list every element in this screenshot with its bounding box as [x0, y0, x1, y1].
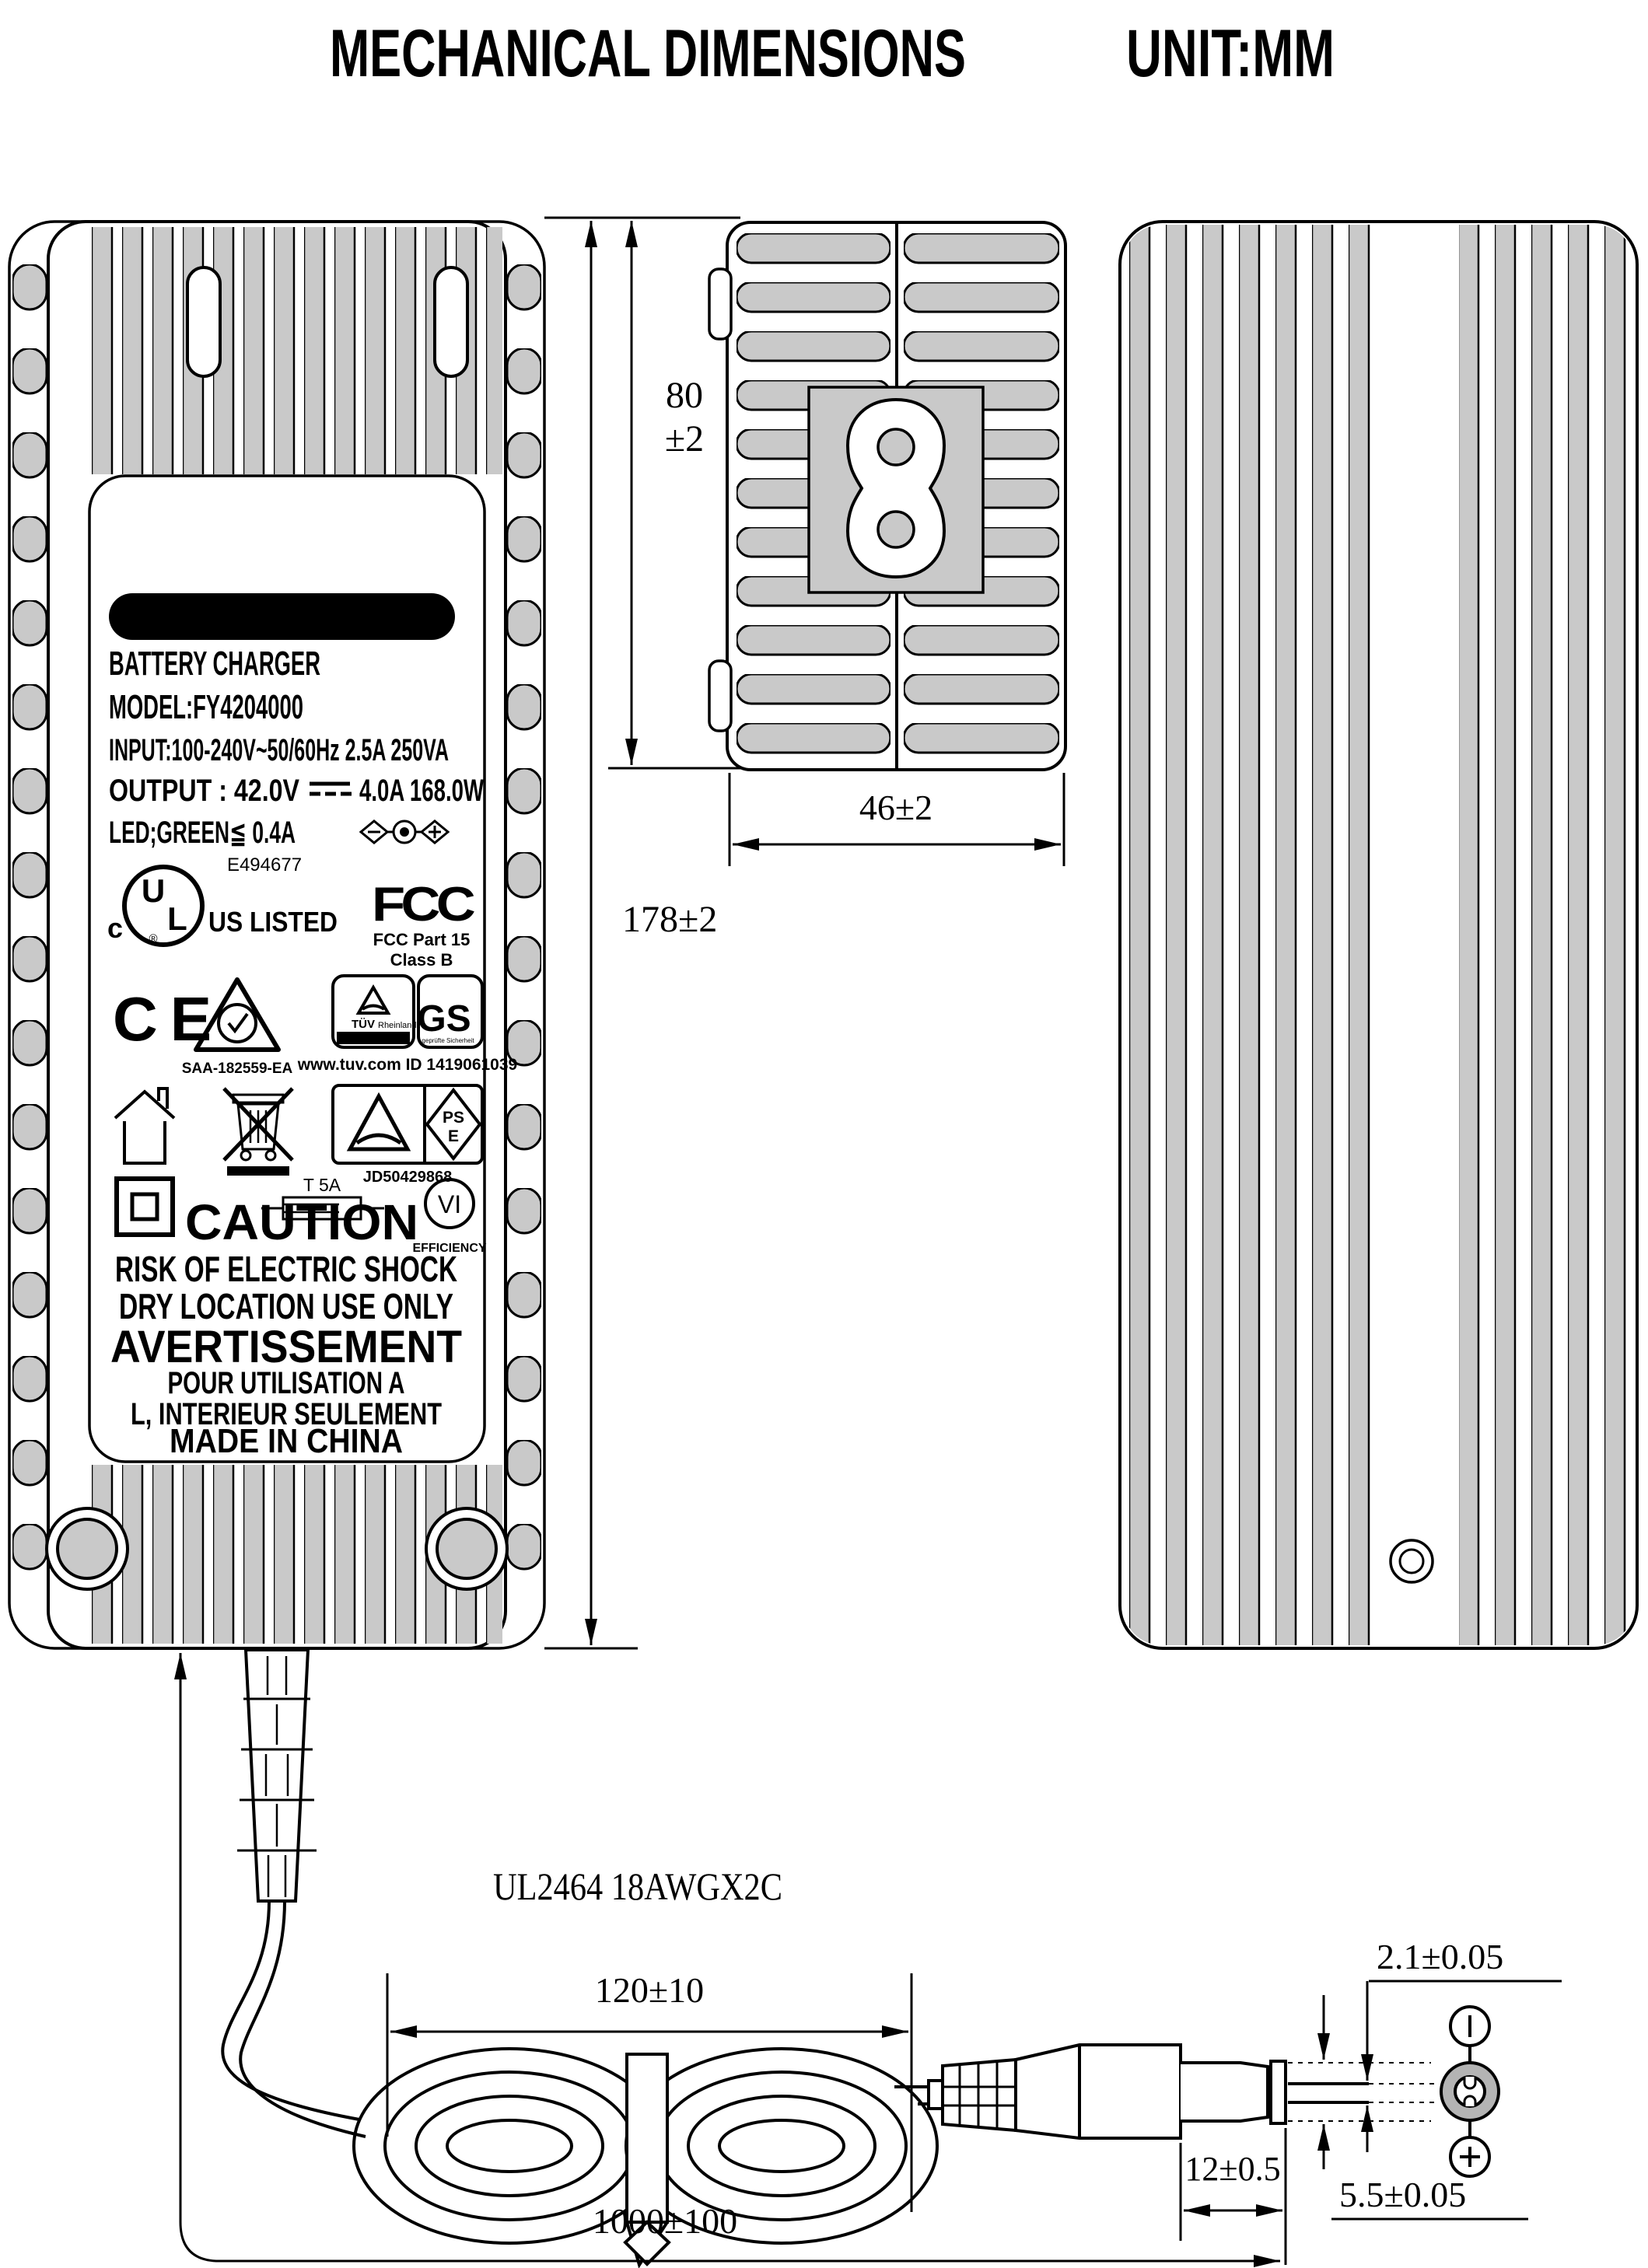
side-clip-top [709, 269, 731, 339]
cable-run-left-2 [240, 1901, 366, 2137]
strain-relief [237, 1650, 317, 1901]
tuv-sub: Rheinland [378, 1021, 417, 1030]
tuv-band: ZERTIFIZIERT [340, 1033, 408, 1044]
inlet-pin-top [878, 429, 914, 465]
tuv-brand: TÜV [352, 1018, 375, 1031]
dim-barrel-5_5: 5.5±0.05 [1324, 1995, 1528, 2219]
right-edge-ribs [507, 264, 541, 1599]
fcc-part: FCC Part 15 [373, 930, 471, 949]
dim-coil-text: 120±10 [595, 1970, 704, 2010]
ul-reg: ® [149, 932, 157, 945]
dim-barrel-len-text: 12±0.5 [1184, 2150, 1280, 2188]
dim-width-text: 46±2 [859, 788, 932, 827]
gs-sub: geprüfte Sicherheit [422, 1037, 474, 1044]
label-led: LED;GREEN≦ 0.4A [109, 816, 296, 850]
pse-ps: PS [443, 1109, 464, 1127]
warning-line-3: AVERTISSEMENT [110, 1322, 462, 1372]
top-view [709, 222, 1065, 770]
vent-slot-left [187, 267, 220, 376]
gs-logo: GS [417, 998, 471, 1040]
dim-depth-value: 80 [666, 375, 703, 416]
rcm-code: SAA-182559-EA [182, 1061, 293, 1077]
label-model: MODEL:FY4204000 [109, 688, 303, 726]
fcc-class: Class B [390, 950, 453, 970]
page-title: MECHANICAL DIMENSIONS [330, 16, 966, 91]
unit-label: UNIT:MM [1126, 16, 1335, 91]
plug-tip-flange [1271, 2061, 1286, 2123]
warning-line-2: DRY LOCATION USE ONLY [119, 1286, 453, 1326]
mechanical-dimensions-drawing: MECHANICAL DIMENSIONS UNIT:MM FOR 36V LI… [0, 0, 1648, 2268]
pse-e: E [448, 1127, 459, 1145]
label-input: INPUT:100-240V~50/60Hz 2.5A 250VA [109, 733, 449, 767]
plug-cable-stub [929, 2081, 943, 2109]
warning-line-1: RISK OF ELECTRIC SHOCK [115, 1249, 457, 1289]
side-view [1120, 222, 1637, 1648]
dim-height-178: 178±2 [544, 218, 740, 1648]
front-view: FOR 36V LI-ION BATTERY BATTERY CHARGER M… [9, 222, 544, 2137]
warning-line-4: POUR UTILISATION A [168, 1366, 405, 1400]
dim-cable-text: 1000±100 [593, 2201, 737, 2241]
ac-inlet [809, 387, 983, 592]
ul-us-listed: US LISTED [208, 906, 338, 938]
plug-barrel [1181, 2063, 1268, 2121]
screw-boss-right [426, 1508, 507, 1589]
plug-polarity-icon [1441, 2007, 1499, 2176]
plug-body [1016, 2045, 1181, 2138]
dim-width-46: 46±2 [730, 773, 1064, 866]
dim-depth-tolerance: ±2 [665, 418, 704, 460]
inlet-pin-bottom [878, 512, 914, 547]
ul-u: U [142, 872, 165, 909]
fcc-logo-text: FCC [372, 878, 475, 931]
cable-spec-text: UL2464 18AWGX2C [493, 1864, 782, 1908]
dc-plug [929, 2045, 1435, 2138]
dim-height-text: 178±2 [622, 899, 717, 940]
vent-slot-right [435, 267, 467, 376]
dim-barrel-length-12: 12±0.5 [1181, 2128, 1286, 2265]
caution-heading: CAUTION [185, 1194, 418, 1250]
ul-l: L [167, 900, 187, 937]
label-output-values: 4.0A 168.0W [359, 774, 484, 808]
product-label: FOR 36V LI-ION BATTERY BATTERY CHARGER M… [89, 476, 517, 1462]
ce-mark: CE [113, 984, 224, 1054]
side-ribs-right [1459, 225, 1630, 1645]
side-clip-bottom [709, 661, 731, 731]
efficiency-level: VI [438, 1190, 461, 1218]
fuse-rating: T 5A [303, 1175, 341, 1195]
label-header: FOR 36V LI-ION BATTERY [126, 598, 439, 634]
dim-cable-1000: 1000±100 [180, 1653, 1280, 2261]
label-output: OUTPUT : 42.0V [109, 774, 299, 808]
side-ribs-left [1129, 225, 1375, 1645]
label-product: BATTERY CHARGER [109, 645, 320, 683]
origin-line: MADE IN CHINA [170, 1422, 403, 1460]
tuv-id: www.tuv.com ID 1419061039 [297, 1056, 517, 1074]
cable-run-left [222, 1901, 359, 2119]
screw-boss-left [47, 1508, 128, 1589]
dim-barrel-dia-text: 5.5±0.05 [1339, 2175, 1466, 2214]
plug-strain-relief [943, 2060, 1016, 2130]
ul-c: c [107, 912, 123, 944]
ul-file-number: E494677 [227, 854, 302, 875]
left-edge-ribs [12, 264, 47, 1599]
dim-pin-text: 2.1±0.05 [1377, 1937, 1503, 1976]
